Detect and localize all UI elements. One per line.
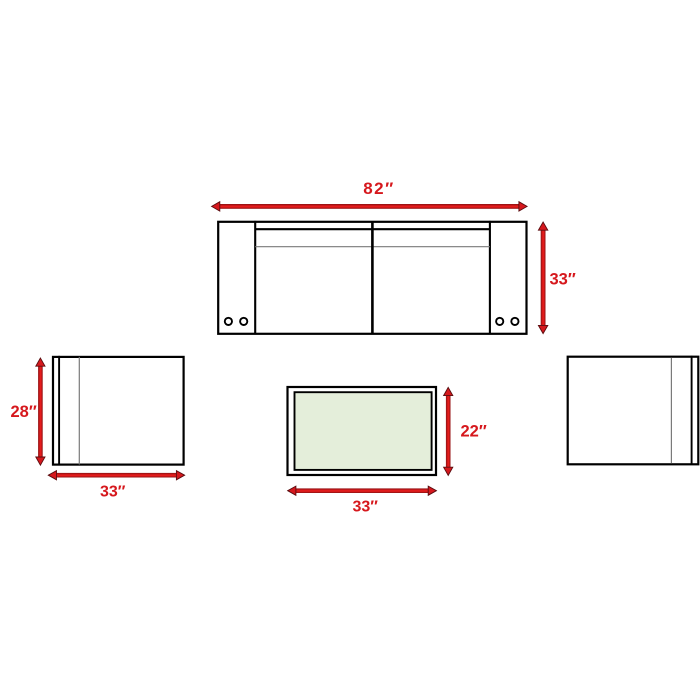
svg-text:28″: 28″ (11, 403, 37, 421)
svg-text:22″: 22″ (461, 423, 487, 441)
svg-text:82″: 82″ (363, 179, 395, 198)
svg-text:33″: 33″ (550, 271, 576, 289)
svg-text:33″: 33″ (353, 499, 379, 516)
svg-text:33″: 33″ (100, 484, 126, 501)
